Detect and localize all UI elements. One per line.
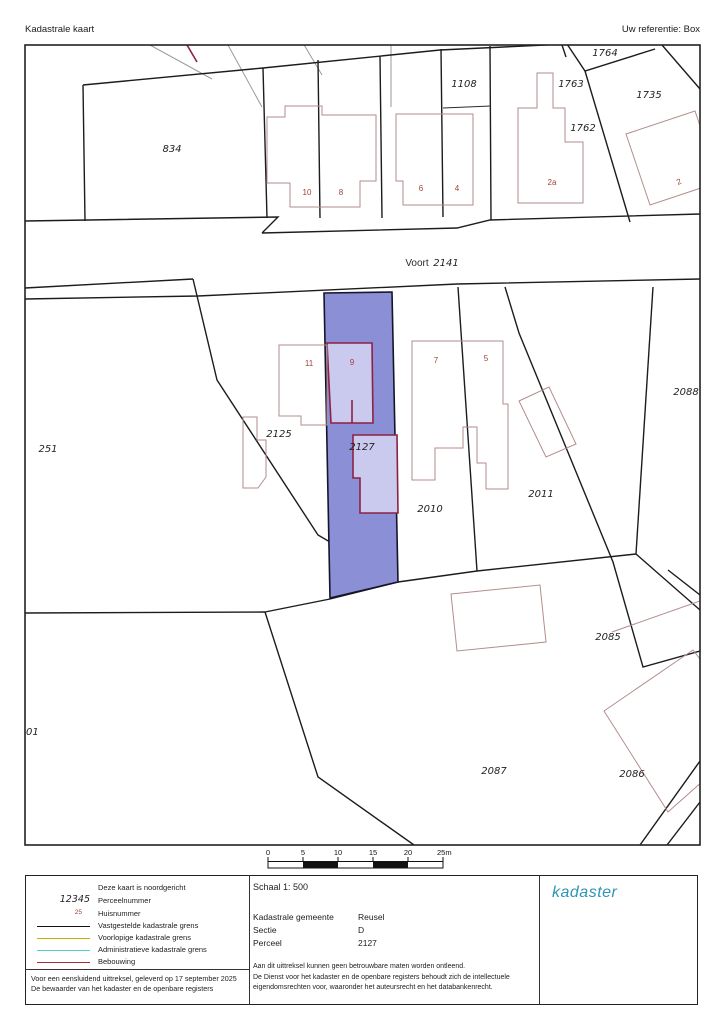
scale-tick-20: 20: [404, 848, 412, 857]
info-label-sectie: Sectie: [253, 925, 277, 935]
parcel-boundary: [505, 287, 700, 667]
legend-line-sample: [37, 926, 90, 927]
house-number-label: Huisnummer: [98, 909, 141, 918]
parcel-label-1108: 1108: [451, 79, 476, 90]
parcel-boundary: [25, 612, 265, 613]
house-number-5: 5: [484, 354, 489, 363]
parcel-boundary: [662, 45, 700, 89]
parcel-boundary: [585, 71, 630, 222]
parcel-label-2127: 2127: [349, 442, 375, 453]
parcel-boundary: [441, 49, 443, 217]
building-outline-2085: [451, 585, 546, 651]
parcel-boundary: [458, 287, 477, 571]
disclaimer-line: eigendomsrechten voor, waaronder het aut…: [253, 984, 493, 991]
parcel-boundary: [668, 570, 700, 595]
parcel-boundary: [562, 45, 566, 57]
parcel-label-2088: 2088: [673, 387, 698, 398]
legend-line-sample: [37, 950, 90, 951]
parcel-boundary: [265, 554, 636, 612]
parcel-label-1764: 1764: [592, 48, 617, 59]
building-outline-houses-6-4: [396, 114, 473, 205]
info-label-perceel: Perceel: [253, 938, 282, 948]
north-note: Deze kaart is noordgericht: [98, 883, 186, 892]
legend-line-sample: [37, 962, 90, 963]
parcel-boundary: [380, 56, 382, 218]
legend-label: Voorlopige kadastrale grens: [98, 933, 191, 942]
parcel-boundary: [443, 106, 491, 108]
parcel-label-251: 251: [38, 444, 57, 455]
parcel-boundary: [265, 612, 414, 845]
parcel-label-2010: 2010: [417, 504, 442, 515]
parcel-boundary: [25, 279, 193, 288]
parcel-boundary: [263, 68, 267, 218]
legend-label: Administratieve kadastrale grens: [98, 945, 207, 954]
scale-bar: 0510152025m: [266, 848, 452, 868]
parcel-boundary: [25, 217, 278, 233]
auxiliary-line: [303, 43, 322, 75]
scale-tick-25m: 25m: [437, 848, 452, 857]
parcel-boundary: [640, 761, 700, 845]
house-number-2a: 2a: [548, 178, 557, 187]
building-outline-houses-7-5: [412, 341, 508, 489]
parcel-label-2125: 2125: [266, 429, 291, 440]
info-value-gemeente: Reusel: [358, 912, 384, 922]
footer-divider: [249, 875, 250, 1005]
building-outline-2125: [243, 417, 266, 488]
parcel-label-01: 01: [26, 727, 39, 738]
parcel-boundary: [636, 554, 700, 610]
house-number-sample: 25: [40, 909, 82, 916]
parcel-label-2086: 2086: [619, 769, 644, 780]
house-number-4: 4: [455, 184, 460, 193]
street-name-Voort: Voort: [405, 258, 429, 269]
building-outline-houses-10-8: [267, 106, 376, 207]
auxiliary-line: [228, 45, 262, 107]
parcel-boundary: [83, 44, 567, 85]
parcel-label-2141: 2141: [433, 258, 458, 269]
scale-tick-0: 0: [266, 848, 270, 857]
building-outline-2011: [519, 387, 576, 457]
kadaster-logo-text: kadaster: [552, 884, 617, 902]
parcel-label-2087: 2087: [481, 766, 507, 777]
building-edge: [187, 45, 197, 62]
parcel-boundary: [83, 85, 85, 221]
parcel-number-sample: 12345: [40, 894, 90, 905]
legend-line-sample: [37, 938, 90, 939]
parcel-label-1763: 1763: [558, 79, 583, 90]
parcel-boundary: [318, 60, 320, 218]
house-number-7: 7: [434, 356, 439, 365]
info-value-sectie: D: [358, 925, 364, 935]
building-outline-house-2: [626, 111, 719, 205]
parcel-boundary: [490, 46, 491, 220]
parcel-number-label: Perceelnummer: [98, 896, 151, 905]
footer-divider: [25, 969, 249, 970]
disclaimer-line: De Dienst voor het kadaster en de openba…: [253, 974, 510, 981]
scale-label: Schaal 1: 500: [253, 882, 308, 892]
certificate-line: De bewaarder van het kadaster en de open…: [31, 984, 213, 993]
parcel-boundary: [636, 287, 653, 554]
cadastral-map: 83411081764176317351762108642a2Voort2141…: [0, 0, 724, 1024]
parcel-boundary: [262, 214, 700, 233]
footer-divider: [539, 875, 540, 1005]
house-number-6: 6: [419, 184, 424, 193]
house-number-11: 11: [305, 359, 314, 368]
parcel-label-1762: 1762: [570, 123, 595, 134]
scale-tick-5: 5: [301, 848, 305, 857]
house-number-10: 10: [303, 188, 312, 197]
parcel-label-1735: 1735: [636, 90, 661, 101]
legend-label: Vastgestelde kadastrale grens: [98, 921, 198, 930]
house-number-8: 8: [339, 188, 344, 197]
info-label-gemeente: Kadastrale gemeente: [253, 912, 334, 922]
parcel-label-2011: 2011: [528, 489, 553, 500]
house-number-2: 2: [675, 176, 683, 186]
legend-label: Bebouwing: [98, 957, 135, 966]
certificate-line: Voor een eensluidend uittreksel, gelever…: [31, 974, 237, 983]
parcel-label-834: 834: [162, 144, 181, 155]
scale-tick-15: 15: [369, 848, 377, 857]
info-value-perceel: 2127: [358, 938, 377, 948]
disclaimer-line: Aan dit uittreksel kunnen geen betrouwba…: [253, 963, 465, 970]
highlighted-building-upper: [327, 343, 373, 423]
scale-tick-10: 10: [334, 848, 342, 857]
building-outline-2086: [604, 650, 724, 812]
parcel-label-2085: 2085: [595, 632, 620, 643]
building-outline-house-11: [279, 345, 327, 425]
house-number-9: 9: [350, 358, 355, 367]
